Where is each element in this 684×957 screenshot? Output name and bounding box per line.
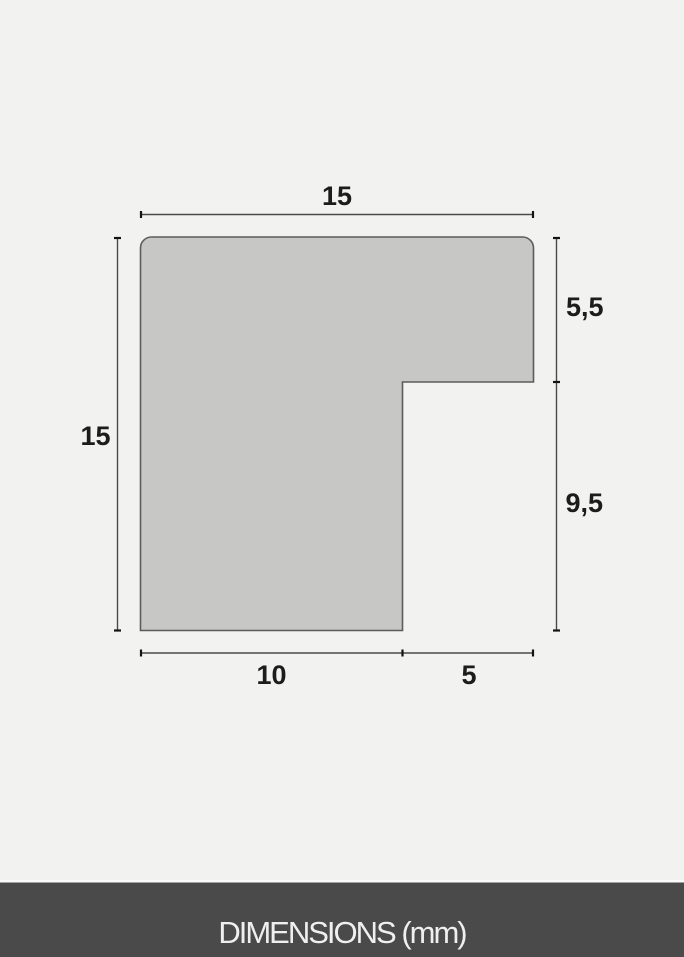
svg-text:10: 10 xyxy=(256,660,286,690)
svg-text:15: 15 xyxy=(80,421,110,451)
svg-text:9,5: 9,5 xyxy=(566,488,604,518)
svg-text:15: 15 xyxy=(322,181,352,211)
svg-text:5,5: 5,5 xyxy=(566,292,604,322)
svg-text:5: 5 xyxy=(461,660,476,690)
svg-text:DIMENSIONS (mm): DIMENSIONS (mm) xyxy=(218,915,466,950)
